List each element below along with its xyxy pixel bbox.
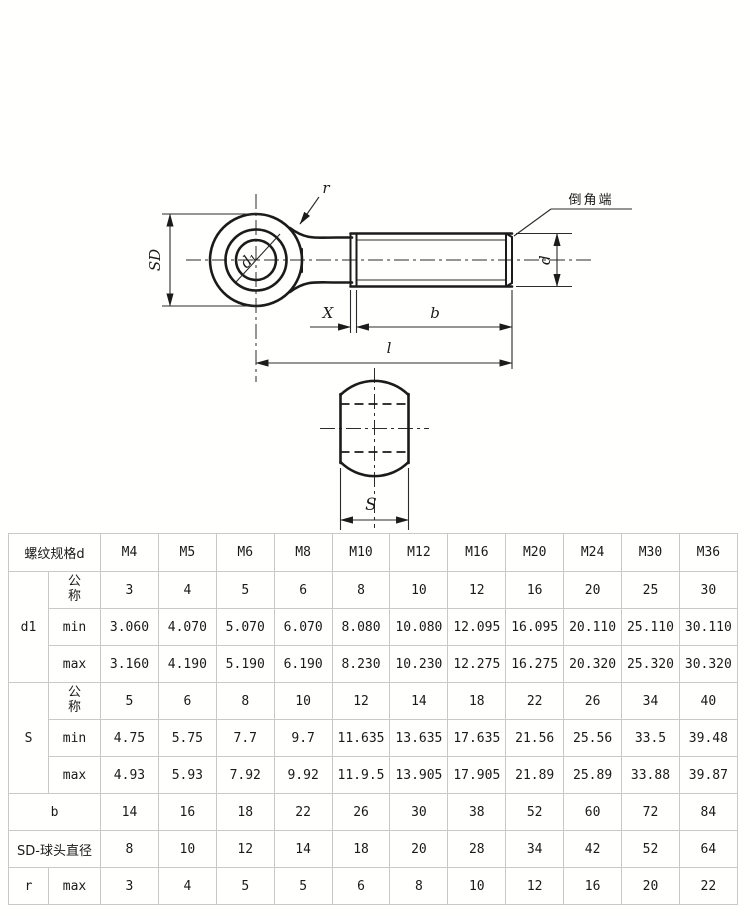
- cell: 16.275: [506, 646, 564, 683]
- cell: 10.080: [390, 609, 448, 646]
- cell: 16: [506, 572, 564, 609]
- row-group-sd: SD-球头直径: [9, 831, 101, 868]
- cell: 13.905: [390, 757, 448, 794]
- cell: 3: [101, 868, 159, 905]
- row-group-d1: d1: [9, 572, 49, 683]
- cell: 18: [448, 683, 506, 720]
- size-header-m8: M8: [274, 534, 332, 572]
- spec-label-cell: 螺纹规格d: [9, 534, 101, 572]
- cell: 12.095: [448, 609, 506, 646]
- cell: 5.070: [216, 609, 274, 646]
- cell: 20: [390, 831, 448, 868]
- cell: 22: [506, 683, 564, 720]
- x-dimension-label: X: [322, 304, 335, 322]
- cell: 10: [390, 572, 448, 609]
- cell: 8: [332, 572, 390, 609]
- cell: 10: [448, 868, 506, 905]
- cell: 25.56: [564, 720, 622, 757]
- cell: 34: [506, 831, 564, 868]
- cell: 30.110: [679, 609, 737, 646]
- cell: 60: [564, 794, 622, 831]
- cell: 5.75: [158, 720, 216, 757]
- cell: 42: [564, 831, 622, 868]
- hole-diameter-label: d₁: [236, 248, 260, 272]
- cell: 14: [390, 683, 448, 720]
- nominal-text: 公称: [68, 686, 82, 716]
- cell: 30.320: [679, 646, 737, 683]
- row-s-min: min 4.75 5.75 7.7 9.7 11.635 13.635 17.6…: [9, 720, 738, 757]
- sublabel-max: max: [49, 646, 101, 683]
- cell: 10: [274, 683, 332, 720]
- cell: 16: [564, 868, 622, 905]
- cell: 22: [679, 868, 737, 905]
- fillet-radius-leader: [300, 197, 319, 224]
- sublabel-min: min: [49, 720, 101, 757]
- cell: 20.320: [564, 646, 622, 683]
- cell: 16.095: [506, 609, 564, 646]
- cell: 12: [506, 868, 564, 905]
- cell: 20: [622, 868, 680, 905]
- row-b: b 14 16 18 22 26 30 38 52 60 72 84: [9, 794, 738, 831]
- neck-top-profile: [290, 228, 352, 238]
- cell: 34: [622, 683, 680, 720]
- cell: 64: [679, 831, 737, 868]
- cell: 11.9.5: [332, 757, 390, 794]
- b-dimension-label: b: [430, 304, 440, 322]
- cell: 5: [274, 868, 332, 905]
- size-header-m12: M12: [390, 534, 448, 572]
- cell: 5.190: [216, 646, 274, 683]
- cell: 12: [216, 831, 274, 868]
- cell: 17.635: [448, 720, 506, 757]
- row-d1-min: min 3.060 4.070 5.070 6.070 8.080 10.080…: [9, 609, 738, 646]
- cell: 30: [679, 572, 737, 609]
- cell: 14: [274, 831, 332, 868]
- sublabel-max: max: [49, 868, 101, 905]
- cell: 26: [332, 794, 390, 831]
- cell: 5: [216, 572, 274, 609]
- cell: 72: [622, 794, 680, 831]
- cell: 3.060: [101, 609, 159, 646]
- sublabel-nominal: 公称: [49, 683, 101, 720]
- cell: 20: [564, 572, 622, 609]
- chamfer-end-label: 倒角端: [568, 193, 613, 208]
- neck-bottom-profile: [290, 282, 352, 292]
- cell: 38: [448, 794, 506, 831]
- sublabel-min: min: [49, 609, 101, 646]
- sd-dimension-label: SD: [146, 249, 164, 271]
- cell: 8.230: [332, 646, 390, 683]
- cell: 6: [158, 683, 216, 720]
- size-header-m30: M30: [622, 534, 680, 572]
- cell: 16: [158, 794, 216, 831]
- row-group-s: S: [9, 683, 49, 794]
- cell: 22: [274, 794, 332, 831]
- cell: 11.635: [332, 720, 390, 757]
- spec-table: 螺纹规格d M4 M5 M6 M8 M10 M12 M16 M20 M24 M3…: [8, 533, 738, 905]
- row-sd: SD-球头直径 8 10 12 14 18 20 28 34 42 52 64: [9, 831, 738, 868]
- row-s-nominal: S 公称 5 6 8 10 12 14 18 22 26 34 40: [9, 683, 738, 720]
- cell: 39.48: [679, 720, 737, 757]
- cell: 14: [101, 794, 159, 831]
- size-header-m16: M16: [448, 534, 506, 572]
- cell: 6: [274, 572, 332, 609]
- nominal-text: 公称: [68, 575, 82, 605]
- cell: 4: [158, 868, 216, 905]
- row-s-max: max 4.93 5.93 7.92 9.92 11.9.5 13.905 17…: [9, 757, 738, 794]
- cell: 25.89: [564, 757, 622, 794]
- cell: 8: [101, 831, 159, 868]
- sublabel-max: max: [49, 757, 101, 794]
- cell: 25: [622, 572, 680, 609]
- cell: 30: [390, 794, 448, 831]
- cell: 9.7: [274, 720, 332, 757]
- cell: 33.88: [622, 757, 680, 794]
- cell: 25.320: [622, 646, 680, 683]
- cell: 40: [679, 683, 737, 720]
- size-header-m6: M6: [216, 534, 274, 572]
- size-header-m4: M4: [101, 534, 159, 572]
- cell: 7.92: [216, 757, 274, 794]
- s-dimension-label: S: [365, 495, 377, 515]
- size-header-m24: M24: [564, 534, 622, 572]
- cell: 21.89: [506, 757, 564, 794]
- cell: 5: [101, 683, 159, 720]
- eye-bolt-technical-drawing: d₁ SD r 倒角端 d: [0, 0, 750, 535]
- cell: 6: [332, 868, 390, 905]
- cell: 8.080: [332, 609, 390, 646]
- cell: 10: [158, 831, 216, 868]
- cell: 4.070: [158, 609, 216, 646]
- cell: 9.92: [274, 757, 332, 794]
- l-dimension-label: l: [387, 339, 392, 357]
- row-group-b: b: [9, 794, 101, 831]
- cell: 3.160: [101, 646, 159, 683]
- cell: 8: [216, 683, 274, 720]
- d-dimension-label: d: [536, 255, 554, 265]
- cell: 5: [216, 868, 274, 905]
- cell: 6.190: [274, 646, 332, 683]
- cell: 52: [622, 831, 680, 868]
- size-header-m36: M36: [679, 534, 737, 572]
- cell: 12: [332, 683, 390, 720]
- cell: 33.5: [622, 720, 680, 757]
- cell: 18: [332, 831, 390, 868]
- spec-sheet-page: d₁ SD r 倒角端 d: [0, 0, 750, 916]
- cell: 4.75: [101, 720, 159, 757]
- cell: 6.070: [274, 609, 332, 646]
- size-header-m20: M20: [506, 534, 564, 572]
- cell: 5.93: [158, 757, 216, 794]
- cell: 84: [679, 794, 737, 831]
- cell: 39.87: [679, 757, 737, 794]
- cell: 25.110: [622, 609, 680, 646]
- cell: 13.635: [390, 720, 448, 757]
- cell: 26: [564, 683, 622, 720]
- row-d1-nominal: d1 公称 3 4 5 6 8 10 12 16 20 25 30: [9, 572, 738, 609]
- header-row: 螺纹规格d M4 M5 M6 M8 M10 M12 M16 M20 M24 M3…: [9, 534, 738, 572]
- cell: 8: [390, 868, 448, 905]
- row-r-max: r max 3 4 5 5 6 8 10 12 16 20 22: [9, 868, 738, 905]
- cell: 4.190: [158, 646, 216, 683]
- fillet-radius-label: r: [322, 179, 330, 197]
- cell: 10.230: [390, 646, 448, 683]
- size-header-m10: M10: [332, 534, 390, 572]
- cell: 4.93: [101, 757, 159, 794]
- sublabel-nominal: 公称: [49, 572, 101, 609]
- cell: 21.56: [506, 720, 564, 757]
- cell: 20.110: [564, 609, 622, 646]
- cell: 17.905: [448, 757, 506, 794]
- size-header-m5: M5: [158, 534, 216, 572]
- cell: 28: [448, 831, 506, 868]
- cell: 18: [216, 794, 274, 831]
- cell: 7.7: [216, 720, 274, 757]
- cell: 52: [506, 794, 564, 831]
- cell: 12.275: [448, 646, 506, 683]
- chamfer-end-leader: [514, 209, 551, 236]
- cell: 3: [101, 572, 159, 609]
- row-group-r: r: [9, 868, 49, 905]
- cell: 4: [158, 572, 216, 609]
- row-d1-max: max 3.160 4.190 5.190 6.190 8.230 10.230…: [9, 646, 738, 683]
- cell: 12: [448, 572, 506, 609]
